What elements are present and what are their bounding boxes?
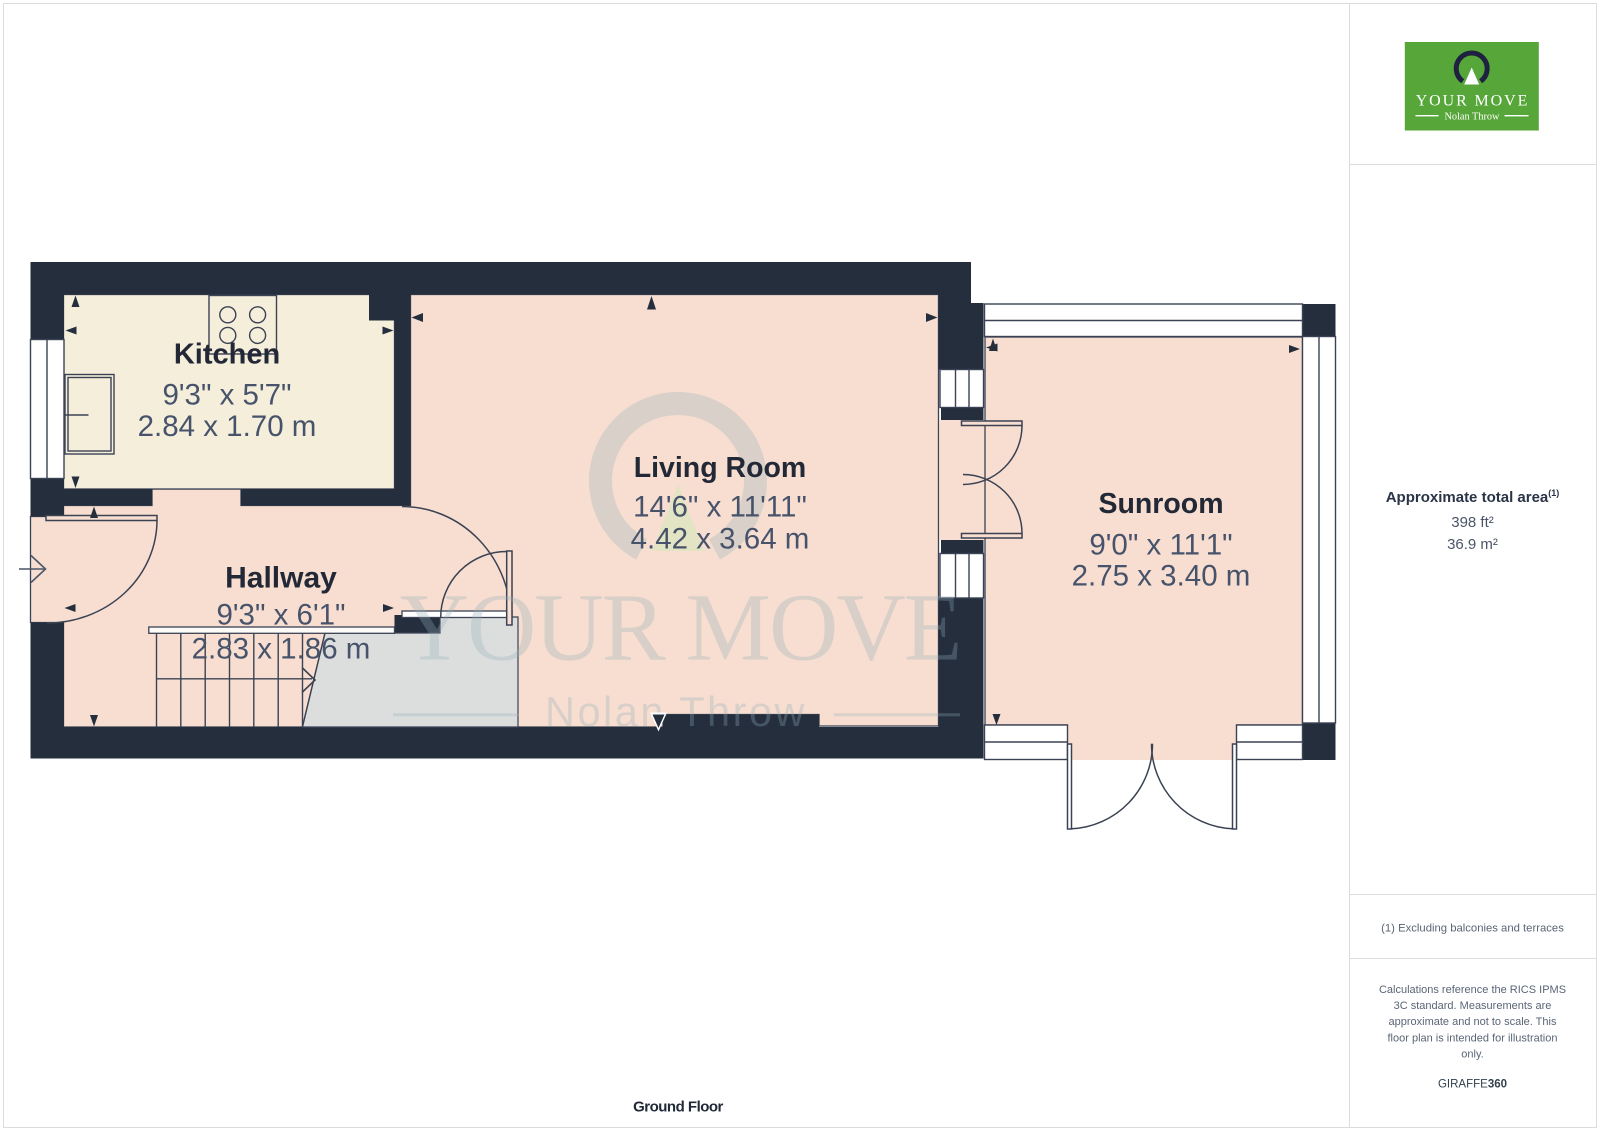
svg-text:4.42 x 3.64 m: 4.42 x 3.64 m	[631, 523, 810, 556]
svg-text:Sunroom: Sunroom	[1098, 488, 1223, 520]
svg-text:9'0" x 11'1": 9'0" x 11'1"	[1089, 528, 1232, 561]
svg-text:floor plan is intended for ill: floor plan is intended for illustration	[1388, 1032, 1558, 1044]
svg-text:Approximate total area(1): Approximate total area(1)	[1386, 488, 1560, 506]
svg-text:36.9 m²: 36.9 m²	[1447, 536, 1498, 553]
svg-text:2.75 x 3.40 m: 2.75 x 3.40 m	[1072, 560, 1251, 593]
svg-text:9'3" x 6'1": 9'3" x 6'1"	[217, 599, 346, 632]
svg-text:Nolan Throw: Nolan Throw	[545, 688, 807, 735]
svg-text:Kitchen: Kitchen	[174, 339, 280, 371]
svg-text:3C standard. Measurements are: 3C standard. Measurements are	[1394, 1000, 1552, 1012]
svg-text:YOUR MOVE: YOUR MOVE	[400, 573, 961, 680]
svg-text:YOUR MOVE: YOUR MOVE	[1416, 93, 1530, 110]
svg-text:14'6" x 11'11": 14'6" x 11'11"	[633, 490, 807, 523]
svg-text:Living Room: Living Room	[634, 452, 807, 484]
svg-text:Ground Floor: Ground Floor	[633, 1099, 723, 1116]
svg-text:2.83 x 1.86 m: 2.83 x 1.86 m	[192, 633, 371, 666]
svg-text:(1) Excluding balconies and te: (1) Excluding balconies and terraces	[1381, 923, 1564, 935]
svg-text:Calculations reference the RIC: Calculations reference the RICS IPMS	[1379, 984, 1566, 996]
svg-text:GIRAFFE360: GIRAFFE360	[1438, 1079, 1507, 1091]
svg-text:approximate and not to scale.: approximate and not to scale. This	[1389, 1016, 1557, 1028]
svg-text:Nolan Throw: Nolan Throw	[1444, 112, 1500, 123]
svg-text:9'3" x 5'7": 9'3" x 5'7"	[163, 378, 292, 411]
svg-text:2.84 x 1.70 m: 2.84 x 1.70 m	[138, 410, 317, 443]
svg-text:398 ft²: 398 ft²	[1451, 514, 1494, 531]
svg-text:Hallway: Hallway	[225, 562, 337, 595]
svg-text:only.: only.	[1461, 1048, 1483, 1060]
